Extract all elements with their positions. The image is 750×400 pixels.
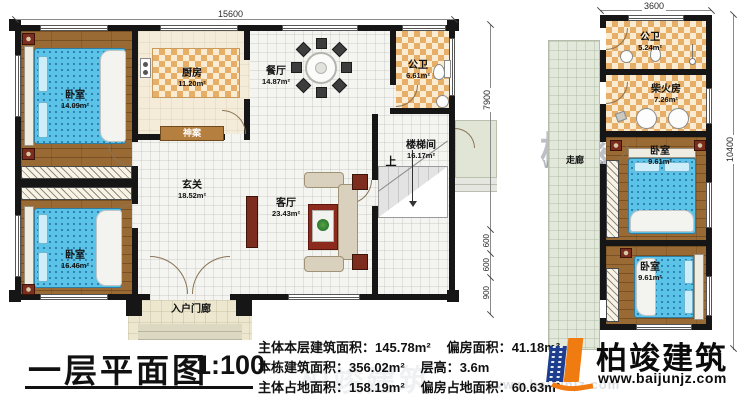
room-area: 6.61m² bbox=[396, 72, 440, 81]
pillow bbox=[684, 260, 693, 284]
stat-value: 3.6m bbox=[460, 360, 490, 375]
plant bbox=[317, 219, 329, 231]
tv-cabinet bbox=[246, 196, 258, 248]
nightstand bbox=[22, 33, 35, 45]
room-name: 楼梯间 bbox=[392, 140, 450, 152]
bedroom1-wardrobe bbox=[21, 166, 132, 179]
stairs-up-label: 上 bbox=[384, 156, 398, 169]
sink bbox=[436, 95, 449, 108]
room-label-annex-bath: 公卫 5.24m² bbox=[628, 32, 672, 52]
porch-pillar bbox=[236, 300, 252, 316]
altar-banner: 神案 bbox=[160, 126, 224, 141]
pillar bbox=[447, 290, 459, 302]
wall bbox=[132, 228, 138, 294]
stat-label: 本栋建筑面积： bbox=[258, 360, 349, 375]
nightstand bbox=[22, 284, 35, 295]
dining-chair bbox=[316, 38, 327, 49]
toilet-tank bbox=[444, 60, 451, 78]
bed-sheet bbox=[96, 210, 122, 286]
window bbox=[15, 215, 21, 277]
room-name: 卧室 bbox=[40, 250, 110, 262]
pillow bbox=[38, 214, 48, 244]
room-label-stairwell: 楼梯间 16.17m² bbox=[392, 140, 450, 160]
stat-label: 偏房占地面积： bbox=[421, 380, 512, 395]
room-name: 卧室 bbox=[40, 90, 110, 102]
bed-sheet bbox=[630, 210, 694, 232]
room-label-bath: 公卫 6.61m² bbox=[396, 60, 440, 80]
room-label-porch: 入户门廊 bbox=[154, 304, 228, 316]
window bbox=[160, 25, 238, 31]
room-label-annex-bedroom-upper: 卧室 9.61m² bbox=[632, 146, 688, 166]
wall bbox=[600, 240, 712, 246]
room-area: 9.61m² bbox=[632, 158, 688, 167]
room-name: 卧室 bbox=[622, 262, 678, 274]
window bbox=[628, 15, 684, 21]
room-name: 厨房 bbox=[160, 68, 224, 80]
dimension-label-right: 7900 bbox=[482, 88, 492, 112]
window bbox=[15, 55, 21, 117]
room-area: 23.43m² bbox=[258, 210, 314, 219]
dining-chair bbox=[316, 87, 327, 98]
wall bbox=[600, 50, 606, 82]
stove-burner bbox=[143, 62, 148, 67]
stats-row-2: 本栋建筑面积：356.02m²层高：3.6m bbox=[258, 357, 489, 376]
room-label-annex-bedroom-lower: 卧室 9.61m² bbox=[622, 262, 678, 282]
room-label-firewood: 柴火房 7.26m² bbox=[638, 84, 694, 104]
window bbox=[282, 25, 358, 31]
dimension-label-annex-top: 3600 bbox=[642, 1, 666, 11]
stove bbox=[140, 58, 151, 78]
room-area: 5.24m² bbox=[628, 44, 672, 53]
stat-value: 145.78m² bbox=[375, 340, 431, 355]
window bbox=[40, 294, 108, 300]
stat-label: 主体本层建筑面积： bbox=[258, 340, 375, 355]
room-label-corridor: 走廊 bbox=[560, 155, 590, 165]
room-area: 9.61m² bbox=[622, 274, 678, 283]
room-name: 公卫 bbox=[396, 60, 440, 72]
sheet-title: 一层平面图 bbox=[28, 344, 208, 392]
stat-label: 偏房面积： bbox=[447, 340, 512, 355]
room-area: 16.46m² bbox=[40, 262, 110, 271]
window bbox=[706, 276, 712, 316]
room-name: 餐厅 bbox=[248, 66, 304, 78]
sofa-seat bbox=[304, 256, 344, 272]
stat-value: 356.02m² bbox=[349, 360, 405, 375]
floor-plan-sheet: 柏竣建筑 柏竣建筑 www.baijunjz.com 柏竣建筑 www.baij… bbox=[0, 0, 750, 400]
room-label-dining: 餐厅 14.87m² bbox=[248, 66, 304, 86]
bed-headboard bbox=[694, 254, 704, 320]
window bbox=[706, 182, 712, 228]
wardrobe bbox=[606, 160, 619, 238]
dimension-label-top: 15600 bbox=[215, 9, 246, 19]
room-label-living: 客厅 23.43m² bbox=[258, 198, 314, 218]
wall bbox=[600, 15, 606, 28]
room-label-bedroom2: 卧室 16.46m² bbox=[40, 250, 110, 270]
nightstand bbox=[694, 140, 706, 151]
corridor-floor bbox=[548, 40, 600, 350]
stove-burner bbox=[143, 70, 148, 75]
nightstand bbox=[22, 148, 35, 160]
window bbox=[402, 25, 446, 31]
dimension-line bbox=[15, 19, 455, 20]
window bbox=[706, 88, 712, 124]
dimension-label: 600 bbox=[482, 258, 491, 271]
stat-label: 主体占地面积： bbox=[258, 380, 349, 395]
pillar bbox=[9, 19, 21, 31]
sheet-scale: 1:100 bbox=[196, 350, 265, 381]
wall bbox=[390, 108, 455, 114]
stats-row-1: 主体本层建筑面积：145.78m²偏房面积：41.18m² bbox=[258, 337, 560, 356]
nightstand bbox=[610, 140, 622, 151]
wood-stove-burner bbox=[636, 108, 657, 129]
room-area: 16.17m² bbox=[392, 152, 450, 161]
nightstand bbox=[620, 248, 632, 258]
wall bbox=[600, 69, 712, 75]
pillow bbox=[38, 56, 48, 92]
side-cabinet bbox=[352, 174, 368, 190]
wood-stove-burner bbox=[668, 108, 689, 129]
window bbox=[40, 25, 108, 31]
entry-porch-steps bbox=[138, 324, 242, 340]
window bbox=[636, 324, 692, 330]
room-label-hall: 玄关 18.52m² bbox=[160, 180, 224, 200]
bed-headboard bbox=[24, 46, 34, 146]
shower-head bbox=[689, 58, 696, 65]
side-cabinet bbox=[352, 254, 368, 270]
room-area: 14.09m² bbox=[40, 102, 110, 111]
room-area: 11.20m² bbox=[160, 80, 224, 89]
title-underline bbox=[25, 386, 253, 389]
stairs-arrow-head bbox=[409, 201, 417, 207]
pillow bbox=[684, 290, 693, 314]
room-name: 柴火房 bbox=[638, 84, 694, 96]
bed-headboard bbox=[24, 206, 34, 290]
dimension-label: 600 bbox=[482, 234, 491, 247]
company-url: www.baijunjz.com bbox=[598, 370, 727, 386]
room-label-kitchen: 厨房 11.20m² bbox=[160, 68, 224, 88]
bedroom2-wardrobe bbox=[21, 187, 132, 200]
room-area: 18.52m² bbox=[160, 192, 224, 201]
stat-label: 层高： bbox=[421, 360, 460, 375]
window bbox=[288, 294, 360, 300]
stat-value: 158.19m² bbox=[349, 380, 405, 395]
wall bbox=[132, 25, 138, 142]
room-name: 客厅 bbox=[258, 198, 314, 210]
room-name: 卧室 bbox=[632, 146, 688, 158]
logo-swoosh bbox=[538, 356, 594, 397]
company-logo-glyph bbox=[540, 330, 596, 396]
porch-pillar bbox=[126, 300, 142, 316]
wardrobe bbox=[606, 268, 619, 322]
room-name: 公卫 bbox=[628, 32, 672, 44]
room-label-bedroom1: 卧室 14.09m² bbox=[40, 90, 110, 110]
dimension-label: 900 bbox=[482, 286, 491, 299]
dimension-line bbox=[733, 15, 734, 350]
wall bbox=[600, 131, 712, 137]
room-area: 7.26m² bbox=[638, 96, 694, 105]
room-name: 玄关 bbox=[160, 180, 224, 192]
wall bbox=[372, 206, 378, 294]
wall bbox=[15, 179, 138, 187]
dimension-line bbox=[490, 25, 491, 315]
sofa-back bbox=[338, 184, 358, 260]
dining-table-center bbox=[315, 62, 327, 74]
room-area: 14.87m² bbox=[248, 78, 304, 87]
dimension-label-annex-right: 10400 bbox=[725, 135, 735, 164]
wall bbox=[244, 25, 250, 60]
wall bbox=[372, 114, 378, 180]
dining-chair bbox=[341, 62, 352, 73]
pillar bbox=[9, 290, 21, 302]
stats-row-3: 主体占地面积：158.19m²偏房占地面积：60.63m² bbox=[258, 377, 560, 396]
